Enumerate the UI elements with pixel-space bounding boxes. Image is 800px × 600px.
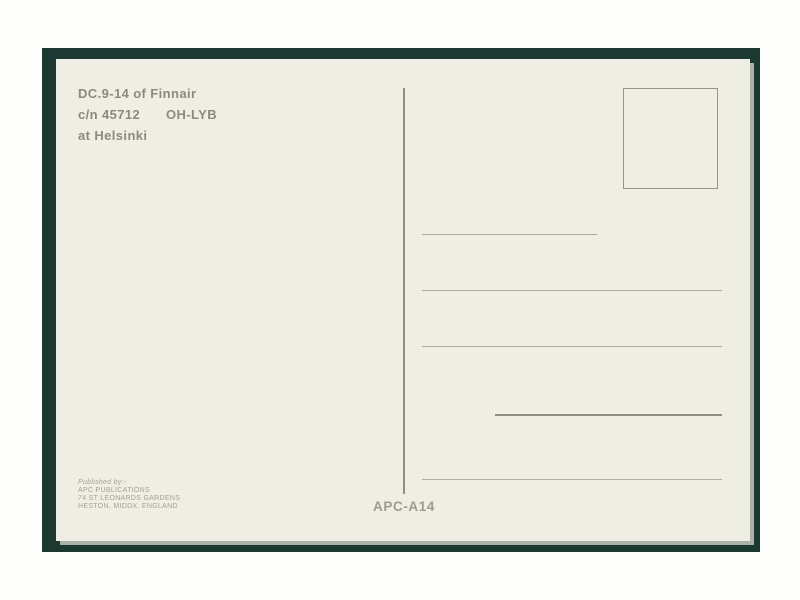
publisher-line-3: 74 ST LEONARDS GARDENS	[78, 495, 180, 503]
caption-line-aircraft: DC.9-14 of Finnair	[78, 83, 217, 104]
center-divider-line	[403, 88, 405, 494]
address-line-2	[422, 290, 722, 291]
scan-mat-background: DC.9-14 of Finnair c/n 45712OH-LYB at He…	[42, 48, 760, 552]
caption-block: DC.9-14 of Finnair c/n 45712OH-LYB at He…	[78, 83, 217, 146]
publisher-line-2: APC PUBLICATIONS	[78, 487, 180, 495]
postcard-back: DC.9-14 of Finnair c/n 45712OH-LYB at He…	[56, 59, 750, 541]
reference-number: APC-A14	[373, 499, 435, 514]
caption-line-location: at Helsinki	[78, 125, 217, 146]
stamp-box	[623, 88, 718, 189]
registration-code: OH-LYB	[166, 107, 217, 122]
publisher-line-1: Published by:-	[78, 479, 180, 487]
publisher-line-4: HESTON, MIDDX. ENGLAND	[78, 503, 180, 511]
caption-line-registration: c/n 45712OH-LYB	[78, 104, 217, 125]
address-line-4	[495, 414, 722, 416]
postcard-scan: DC.9-14 of Finnair c/n 45712OH-LYB at He…	[0, 0, 800, 600]
construction-number: c/n 45712	[78, 104, 166, 125]
address-line-5	[422, 479, 722, 480]
publisher-imprint: Published by:- APC PUBLICATIONS 74 ST LE…	[78, 479, 180, 511]
address-line-1	[422, 234, 597, 235]
address-line-3	[422, 346, 722, 347]
